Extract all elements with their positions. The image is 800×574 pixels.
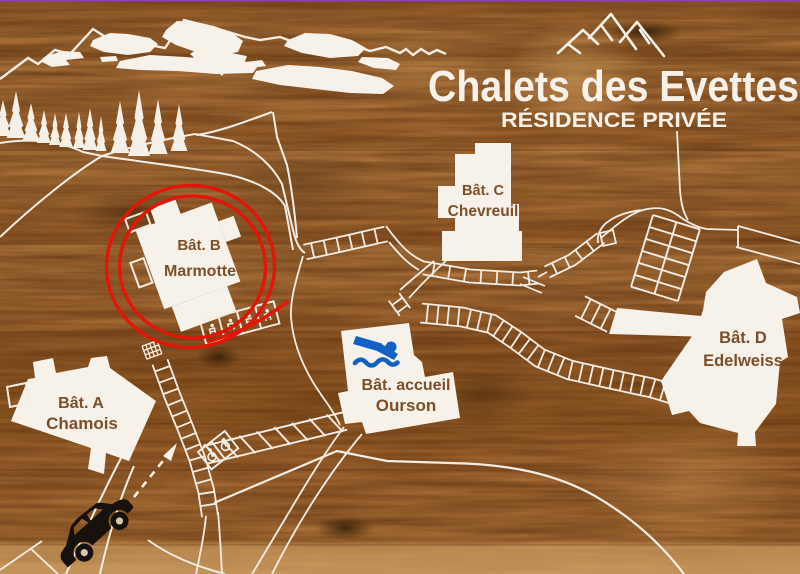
svg-text:Bât. A: Bât. A (58, 395, 104, 412)
svg-text:Chamois: Chamois (46, 414, 118, 433)
svg-text:Chalets des Evettes: Chalets des Evettes (428, 62, 799, 111)
svg-text:Ourson: Ourson (376, 396, 436, 415)
svg-text:Chevreuil: Chevreuil (448, 203, 519, 220)
svg-text:Edelweiss: Edelweiss (703, 352, 783, 370)
svg-text:Bât. C: Bât. C (462, 183, 504, 199)
svg-text:Marmotte: Marmotte (164, 263, 236, 280)
svg-text:Bât. accueil: Bât. accueil (362, 377, 451, 394)
svg-text:Bât. B: Bât. B (177, 237, 221, 254)
svg-text:RÉSIDENCE PRIVÉE: RÉSIDENCE PRIVÉE (501, 109, 727, 132)
svg-text:Bât. D: Bât. D (719, 329, 767, 347)
